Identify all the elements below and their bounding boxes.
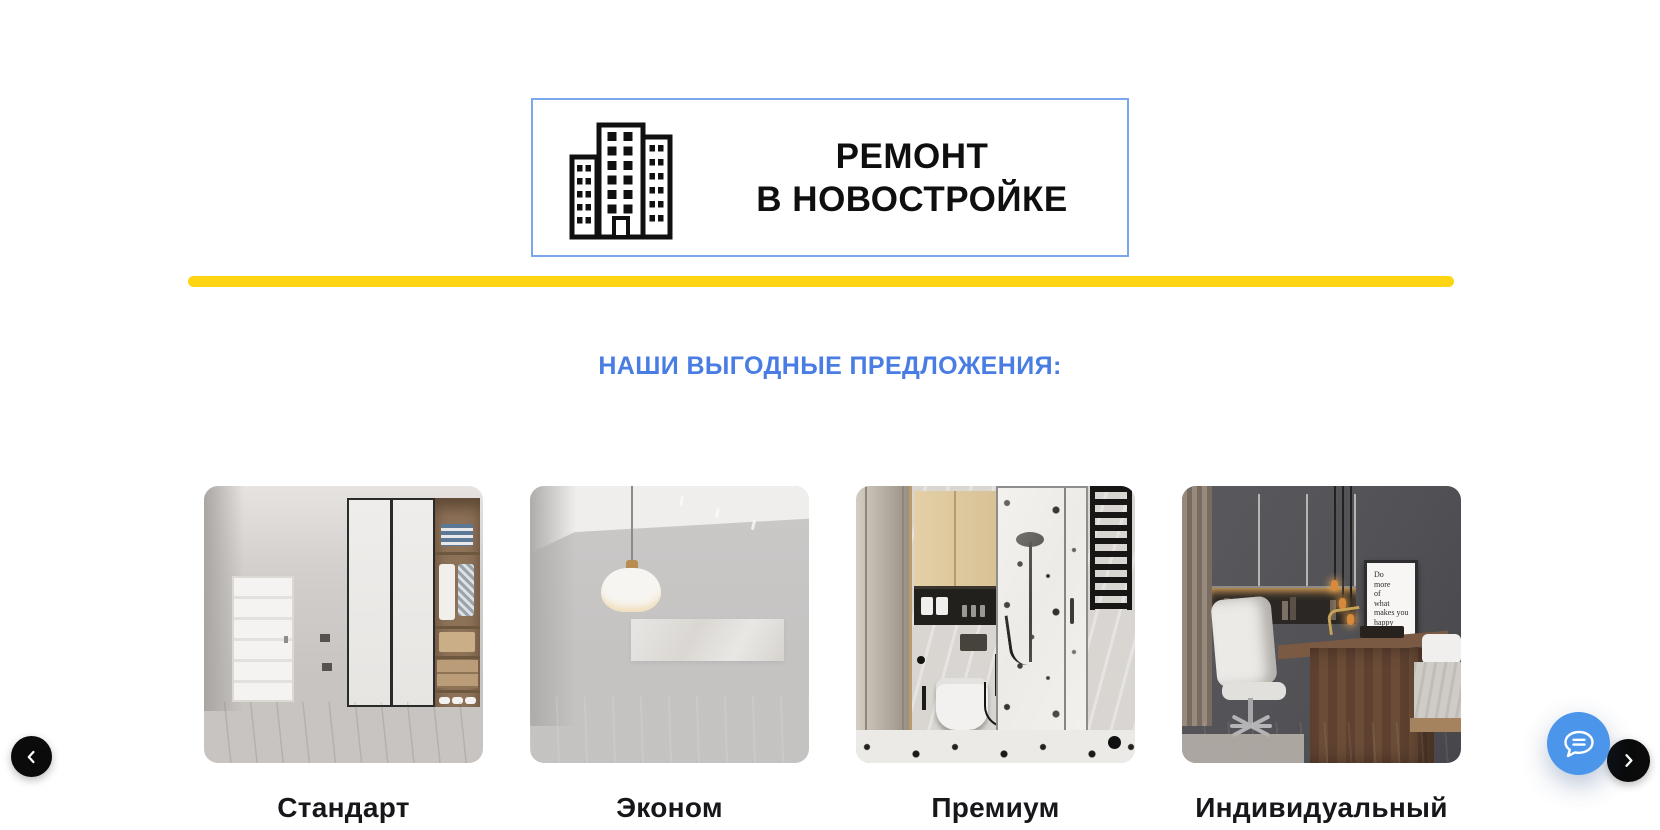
offer-label-econom: Эконом [500, 792, 839, 824]
wardrobe-divider [390, 500, 393, 705]
towel-radiator [1090, 486, 1132, 610]
wood-floor [530, 696, 809, 763]
open-closet [435, 498, 480, 707]
yellow-divider [188, 276, 1454, 287]
pendant-bulb [1331, 580, 1338, 591]
floor-drain [1108, 736, 1121, 749]
premium-bathroom-photo[interactable] [856, 486, 1135, 763]
storage-boxes [439, 632, 475, 652]
shower-door-handle [1070, 598, 1074, 624]
shower-glass-edge [1064, 488, 1066, 742]
bed-pillow [1422, 634, 1461, 664]
bed-blanket [1414, 662, 1461, 722]
offer-card-premium[interactable]: Премиум [856, 486, 1135, 763]
cabinet-seam [954, 491, 956, 586]
page: РЕМОНТ В НОВОСТРОЙКЕ НАШИ ВЫГОДНЫЕ ПРЕДЛ… [0, 0, 1660, 830]
curtain [1182, 486, 1212, 726]
chevron-right-icon [1617, 749, 1640, 772]
desk-lamp [1326, 606, 1362, 635]
offer-card-standard[interactable]: Стандарт [204, 486, 483, 763]
terrazzo-floor [856, 730, 1135, 763]
bottle [971, 605, 976, 617]
desk-accessories [1360, 626, 1404, 638]
flush-plate [960, 634, 987, 651]
offer-card-econom[interactable]: Эконом [530, 486, 809, 763]
offer-label-standard: Стандарт [174, 792, 513, 824]
pendant-cord [1342, 486, 1344, 598]
carousel-prev-button[interactable] [11, 736, 52, 777]
glass-door [856, 486, 912, 763]
office-chair-seat [1222, 682, 1286, 700]
door-handle [284, 636, 288, 643]
logo-title-line1: РЕМОНТ [836, 135, 989, 178]
lamp-cord [631, 486, 633, 564]
shelf [435, 690, 480, 693]
black-niche [914, 589, 996, 625]
shelf [435, 656, 480, 659]
offer-label-individual: Индивидуальный [1152, 792, 1491, 824]
ceiling-spotlight [751, 520, 756, 530]
offer-label-premium: Премиум [826, 792, 1165, 824]
logo-box: РЕМОНТ В НОВОСТРОЙКЕ [531, 98, 1129, 257]
econom-empty-room-photo[interactable] [530, 486, 809, 763]
offer-card-individual[interactable]: Do more of what makes you happy Индивиду… [1182, 486, 1461, 763]
book [1282, 601, 1288, 620]
office-chair-post [1248, 698, 1253, 724]
hanging-plaid-shirt [458, 564, 474, 616]
light-switch [322, 663, 332, 671]
bottle [962, 605, 967, 617]
office-chair-back [1210, 596, 1277, 689]
sliding-wardrobe [347, 498, 435, 707]
carousel-next-button[interactable] [1607, 739, 1650, 782]
chat-bubble-icon [1559, 724, 1599, 764]
wall-shading [530, 486, 576, 726]
individual-office-photo[interactable]: Do more of what makes you happy [1182, 486, 1461, 763]
chat-widget-button[interactable] [1547, 712, 1610, 775]
folded-towels [441, 524, 473, 546]
shower-glass [996, 486, 1088, 744]
terrazzo-shower [996, 486, 1088, 744]
wood-cabinet [914, 491, 996, 589]
wall-hook [917, 656, 925, 664]
shelf [435, 626, 480, 629]
door-frame-line [902, 486, 904, 763]
toilet-brush [922, 686, 926, 710]
poster-text: Do more of what makes you happy [1367, 563, 1415, 627]
door-frame-line [865, 486, 867, 763]
hanging-shirt [439, 564, 455, 620]
shelf [435, 552, 480, 555]
section-heading: НАШИ ВЫГОДНЫЕ ПРЕДЛОЖЕНИЯ: [0, 352, 1660, 381]
logo-title: РЕМОНТ В НОВОСТРОЙКЕ [703, 100, 1121, 255]
marble-wall-panel [631, 619, 784, 661]
brass-door-frame [909, 486, 912, 763]
pendant-cord [1334, 486, 1336, 580]
rug [1182, 734, 1304, 763]
logo-title-line2: В НОВОСТРОЙКЕ [756, 178, 1067, 221]
wood-floor [204, 702, 483, 763]
wall-hung-toilet [936, 678, 988, 730]
bottle [980, 605, 985, 617]
pendant-lamp [601, 568, 661, 612]
building-icon [569, 118, 673, 242]
towel [936, 597, 948, 615]
light-switch [320, 634, 330, 642]
drawers [437, 660, 478, 688]
book [1290, 597, 1296, 620]
chevron-left-icon [21, 746, 43, 768]
bed-frame [1410, 718, 1461, 732]
towel [921, 597, 933, 615]
standard-hallway-photo[interactable] [204, 486, 483, 763]
pendant-cord [1350, 486, 1352, 614]
